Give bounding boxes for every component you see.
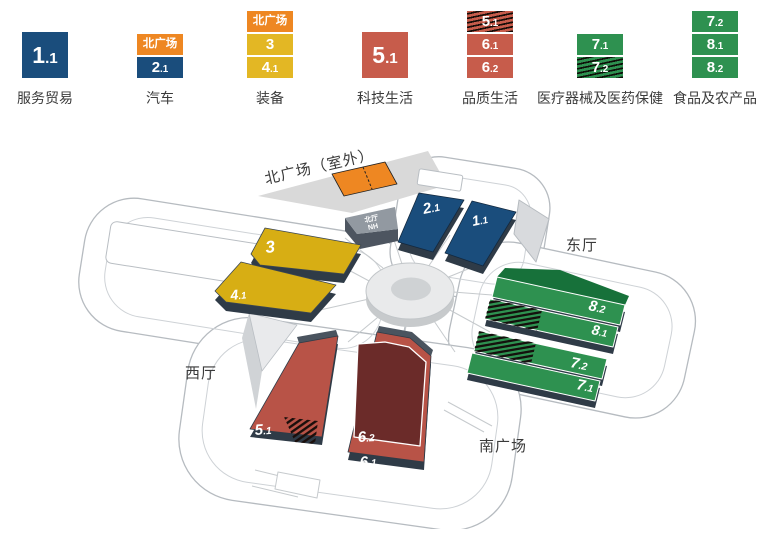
- legend-box-8-2: 8.2: [692, 57, 738, 78]
- legend-item-tech-life: 5.1 科技生活: [357, 6, 413, 108]
- legend-box-5-1-hatched: 5.1: [467, 11, 513, 32]
- east-hall-label: 东厅: [566, 237, 598, 254]
- legend-item-label: 品质生活: [462, 88, 518, 108]
- legend-box-4-1: 4.1: [247, 57, 293, 78]
- legend-boxes: 1.1: [22, 6, 68, 78]
- legend-box-north-plaza: 北广场: [247, 11, 293, 32]
- legend-box-7-1: 7.1: [577, 34, 623, 55]
- legend-item-label: 科技生活: [357, 88, 413, 108]
- legend-box-6-2: 6.2: [467, 57, 513, 78]
- legend-box-7-2: 7.2: [692, 11, 738, 32]
- legend-box-6-1: 6.1: [467, 34, 513, 55]
- legend-box-1-1: 1.1: [22, 32, 68, 78]
- legend-item-label: 食品及农产品: [673, 88, 757, 108]
- legend-item-quality-life: 5.1 6.1 6.2 品质生活: [462, 6, 518, 108]
- venue-map-container: 北厅 NH 3 4.1 2.1 1.1: [0, 130, 762, 534]
- legend-box-7-2-hatched: 7.2: [577, 57, 623, 78]
- legend-item-food: 7.2 8.1 8.2 食品及农产品: [673, 6, 757, 108]
- legend-boxes: 5.1 6.1 6.2: [467, 6, 513, 78]
- legend-box-5-1: 5.1: [362, 32, 408, 78]
- legend-boxes: 北广场 3 4.1: [247, 6, 293, 78]
- legend-boxes: 7.1 7.2: [577, 6, 623, 78]
- legend-boxes: 5.1: [362, 6, 408, 78]
- west-hall-label: 西厅: [185, 365, 217, 382]
- legend-item-label: 医疗器械及医药保健: [537, 88, 663, 108]
- legend: 1.1 服务贸易 北广场 2.1 汽车 北广场 3 4.1 装备 5.1 科技生…: [0, 6, 762, 110]
- central-ring: [366, 263, 454, 327]
- legend-box-8-1: 8.1: [692, 34, 738, 55]
- legend-item-label: 装备: [256, 88, 284, 108]
- legend-boxes: 北广场 2.1: [137, 6, 183, 78]
- legend-box-2-1: 2.1: [137, 57, 183, 78]
- hall-6: 6.2 6.1: [348, 326, 433, 471]
- legend-boxes: 7.2 8.1 8.2: [692, 6, 738, 78]
- legend-box-3: 3: [247, 34, 293, 55]
- south-plaza-label: 南广场: [479, 438, 527, 455]
- legend-item-auto: 北广场 2.1 汽车: [137, 6, 183, 108]
- legend-item-label: 汽车: [146, 88, 174, 108]
- legend-item-equipment: 北广场 3 4.1 装备: [247, 6, 293, 108]
- legend-item-medical: 7.1 7.2 医疗器械及医药保健: [537, 6, 663, 108]
- legend-box-north-plaza: 北广场: [137, 34, 183, 55]
- legend-item-label: 服务贸易: [17, 88, 73, 108]
- legend-item-service-trade: 1.1 服务贸易: [17, 6, 73, 108]
- venue-map: 北厅 NH 3 4.1 2.1 1.1: [0, 130, 762, 529]
